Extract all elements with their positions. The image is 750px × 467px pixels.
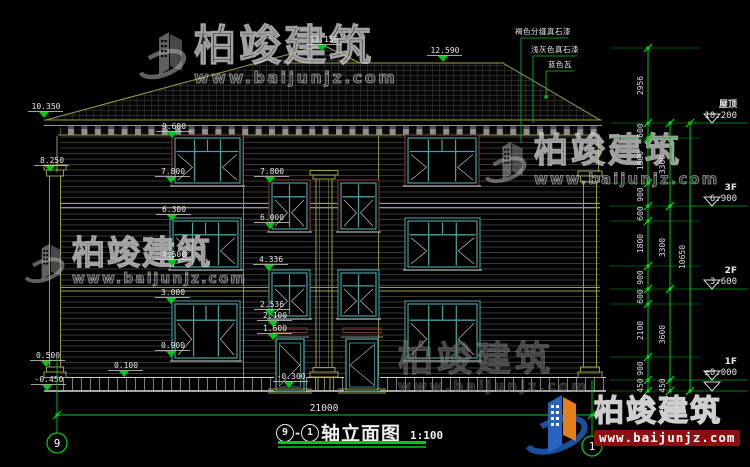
elevation-marker: 12.590 [427,46,462,62]
material-callout: 蓝色瓦 [545,59,575,99]
elevation-marker: 13.156 [306,35,341,51]
dimension-chain: 2956600180090060018009006002100900450 [636,44,652,395]
elevation-marker: 8.250 [34,156,69,172]
svg-text:7.800: 7.800 [161,167,185,176]
svg-text:450: 450 [636,378,645,393]
svg-text:2.536: 2.536 [260,300,284,309]
svg-text:0.100: 0.100 [114,361,138,370]
svg-text:-0.450: -0.450 [35,375,64,384]
svg-text:2.100: 2.100 [263,311,287,320]
elevation-marker: 0.900 [155,341,190,357]
drawing-canvas: 柏竣建筑 www.baijunjz.com 柏竣建筑 www.baijunjz.… [0,0,750,467]
elevation-marker: 7.800 [155,167,190,183]
svg-text:±0.000: ±0.000 [704,368,737,378]
svg-text:1800: 1800 [636,151,645,170]
svg-text:3600: 3600 [658,325,667,344]
svg-text:2100: 2100 [636,321,645,340]
svg-text:1: 1 [589,440,596,453]
elevation-marker: 4.336 [253,255,288,271]
svg-text:10.200: 10.200 [704,111,737,121]
axis-bubble-start: 9 [276,424,294,442]
svg-text:2956: 2956 [636,76,645,95]
svg-text:浅灰色真石漆: 浅灰色真石漆 [531,44,579,54]
svg-text:6.300: 6.300 [162,205,186,214]
svg-text:13.156: 13.156 [310,35,339,44]
annotations-overlay: 13.15612.59010.3509.6008.2507.8007.8006.… [0,0,750,467]
svg-text:3F: 3F [725,183,737,193]
elevation-marker: 6.000 [254,213,289,229]
svg-text:6.000: 6.000 [260,213,284,222]
material-callout: 褐色分缝真石漆 [515,26,571,143]
title-underline [278,441,426,444]
svg-text:3300: 3300 [658,238,667,257]
elevation-marker: 1.600 [257,324,292,340]
svg-text:3.600: 3.600 [710,277,737,287]
elevation-marker: -0.450 [31,375,66,391]
elevation-marker: 9.600 [156,122,191,138]
svg-text:0.900: 0.900 [161,341,185,350]
svg-text:600: 600 [636,289,645,304]
elevation-marker: 0.100 [108,361,143,377]
floor-level-marker: 屋顶10.200 [690,99,748,123]
elevation-marker: 10.350 [28,102,63,118]
svg-text:1800: 1800 [636,234,645,253]
svg-text:4.336: 4.336 [259,255,283,264]
svg-text:褐色分缝真石漆: 褐色分缝真石漆 [515,26,571,36]
svg-text:-0.300: -0.300 [277,372,306,381]
overall-dimension: 21000 [53,403,596,419]
svg-text:1.600: 1.600 [263,324,287,333]
svg-text:10.350: 10.350 [32,102,61,111]
svg-text:12.590: 12.590 [431,46,460,55]
svg-text:2F: 2F [725,266,737,276]
svg-text:4.500: 4.500 [162,250,186,259]
svg-text:3.000: 3.000 [161,288,185,297]
floor-level-marker [690,382,748,391]
elevation-marker: 7.800 [254,167,289,183]
svg-text:600: 600 [636,206,645,221]
svg-text:21000: 21000 [310,403,339,414]
elevation-marker: 3.000 [155,288,190,304]
dimension-chain: 10650 [678,119,694,395]
svg-text:450: 450 [658,378,667,393]
svg-text:900: 900 [636,270,645,285]
svg-text:蓝色瓦: 蓝色瓦 [548,59,572,69]
svg-text:8.250: 8.250 [40,156,64,165]
elevation-marker: 0.500 [30,351,65,367]
svg-text:7.800: 7.800 [260,167,284,176]
elevation-marker: -0.300 [273,372,308,388]
svg-text:600: 600 [636,123,645,138]
svg-text:10650: 10650 [678,245,687,269]
material-callout: 浅灰色真石漆 [531,44,579,123]
grid-axis-bubble: 1 [582,380,602,456]
floor-level-marker: 1F±0.000 [690,357,748,380]
floor-level-marker: 3F6.900 [690,183,748,206]
axis-dash: - [295,426,300,440]
dimension-chain: 330033003600450 [658,119,674,395]
grid-axis-bubble: 9 [47,357,67,453]
floor-level-marker: 2F3.600 [690,266,748,289]
elevation-marker: 6.300 [156,205,191,221]
svg-text:9: 9 [54,437,61,450]
svg-text:6.900: 6.900 [710,194,737,204]
elevation-marker: 4.500 [156,250,191,266]
svg-text:9.600: 9.600 [162,122,186,131]
svg-text:900: 900 [636,187,645,202]
title-underline-2 [278,446,426,448]
svg-text:3300: 3300 [658,155,667,174]
svg-text:屋顶: 屋顶 [719,99,737,110]
svg-text:1F: 1F [725,357,737,367]
svg-text:900: 900 [636,361,645,376]
axis-bubble-end: 1 [301,424,319,442]
